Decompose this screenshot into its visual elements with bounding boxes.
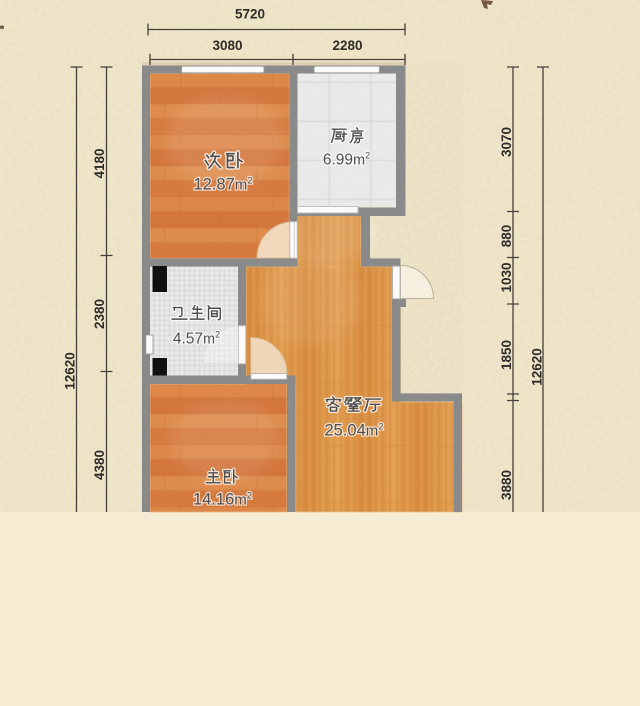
- svg-text:3070: 3070: [499, 127, 514, 157]
- svg-text:2380: 2380: [92, 299, 107, 329]
- svg-text:4180: 4180: [92, 148, 107, 178]
- svg-text:2280: 2280: [332, 38, 362, 53]
- svg-text:1850: 1850: [499, 340, 514, 370]
- svg-text:12.87m2: 12.87m2: [193, 176, 252, 194]
- svg-text:3080: 3080: [212, 38, 242, 53]
- svg-text:4380: 4380: [92, 450, 107, 480]
- svg-text:14.16m2: 14.16m2: [193, 491, 252, 509]
- svg-text:6.99m2: 6.99m2: [323, 151, 370, 169]
- svg-text:1030: 1030: [499, 262, 514, 292]
- svg-text:3880: 3880: [499, 470, 514, 500]
- svg-text:12620: 12620: [530, 348, 545, 386]
- svg-text:880: 880: [499, 225, 514, 248]
- svg-text:4.57m2: 4.57m2: [173, 330, 220, 348]
- svg-text:12620: 12620: [63, 352, 78, 390]
- svg-text:5720: 5720: [235, 7, 265, 22]
- svg-text:25.04m2: 25.04m2: [324, 422, 383, 440]
